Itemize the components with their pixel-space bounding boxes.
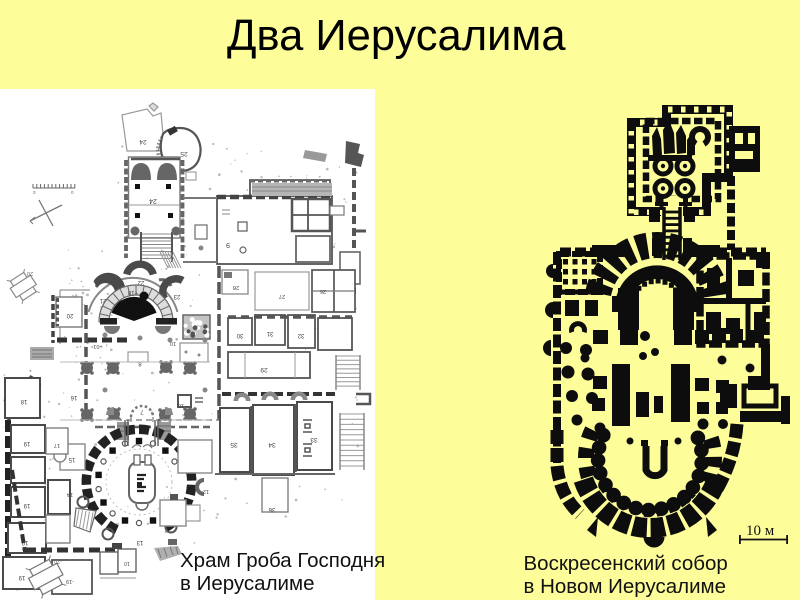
svg-text:28: 28 (233, 284, 239, 290)
svg-text:-19: -19 (66, 578, 74, 584)
svg-text:8: 8 (138, 360, 142, 366)
svg-text:24: 24 (139, 138, 147, 145)
svg-text:25: 25 (180, 150, 188, 157)
svg-text:20: 20 (27, 270, 33, 276)
svg-text:0: 0 (33, 190, 36, 195)
svg-text:16: 16 (70, 394, 77, 400)
svg-text:19: 19 (23, 440, 30, 446)
svg-text:29: 29 (260, 366, 268, 373)
svg-text:-20: -20 (54, 558, 61, 564)
svg-text:33: 33 (310, 436, 318, 443)
svg-text:14: 14 (67, 491, 73, 497)
svg-text:17: 17 (54, 442, 60, 448)
svg-text:36: 36 (268, 506, 275, 512)
svg-text:10: 10 (124, 560, 130, 566)
svg-text:18: 18 (20, 398, 27, 404)
svg-text:12: 12 (203, 488, 209, 494)
svg-text:32: 32 (297, 332, 304, 338)
svg-text:13: 13 (136, 539, 143, 545)
svg-text:24: 24 (149, 197, 157, 204)
svg-text:19: 19 (23, 502, 30, 508)
svg-text:30: 30 (236, 332, 243, 338)
svg-text:34: 34 (268, 441, 276, 448)
svg-text:0: 0 (71, 190, 74, 195)
svg-text:+01: +01 (93, 343, 102, 349)
svg-text:35: 35 (230, 441, 238, 448)
svg-text:10: 10 (178, 402, 184, 408)
svg-text:27: 27 (279, 293, 285, 299)
svg-text:20: 20 (66, 312, 73, 318)
svg-text:23: 23 (173, 293, 180, 299)
svg-text:22: 22 (137, 279, 144, 285)
svg-text:19: 19 (18, 574, 25, 580)
svg-text:7: 7 (140, 408, 144, 414)
svg-text:9: 9 (226, 241, 230, 248)
svg-text:+10: +10 (127, 289, 138, 295)
svg-text:26: 26 (320, 288, 326, 294)
svg-text:10 м: 10 м (746, 523, 775, 539)
svg-text:10: 10 (170, 340, 176, 346)
svg-text:15: 15 (68, 456, 75, 462)
svg-text:31: 31 (266, 330, 273, 336)
